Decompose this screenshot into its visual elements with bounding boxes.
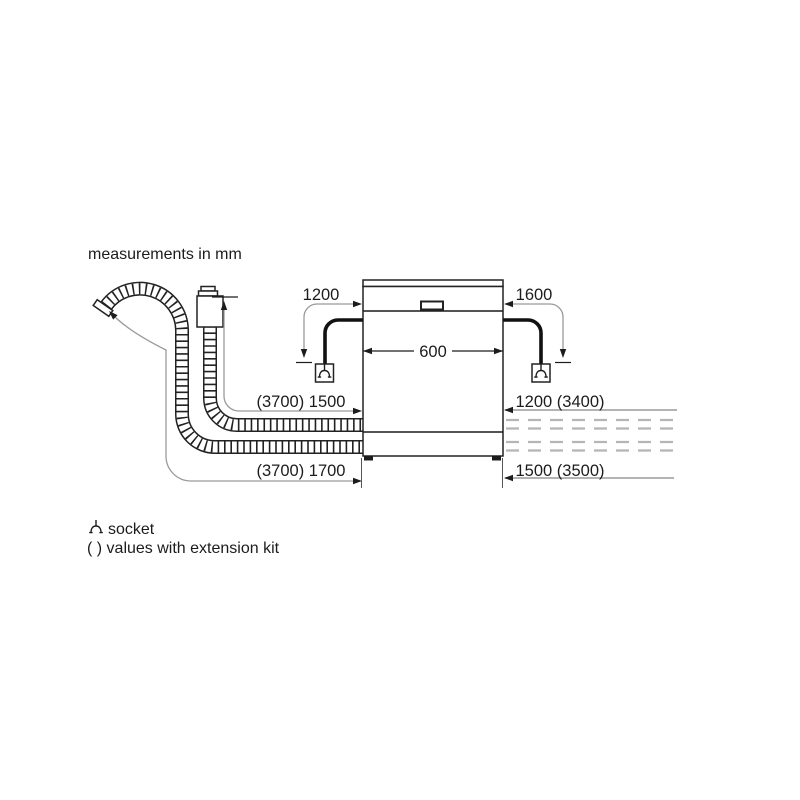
installation-diagram-page: measurements in mm: [0, 0, 800, 800]
dim-supply-hose: (3700) 1500: [212, 297, 362, 414]
legend-extension-note: ( ) values with extension kit: [87, 540, 280, 557]
arrowhead-left: [504, 407, 513, 413]
dishwasher-worktop: [363, 280, 503, 287]
dim-label-left-cable: 1200: [303, 286, 340, 304]
power-cable-left: [325, 320, 363, 364]
arrowhead-left: [504, 301, 513, 307]
arrowhead-down: [560, 349, 566, 358]
dishwasher-foot-left: [364, 456, 373, 461]
dishwasher-foot-right: [492, 456, 501, 461]
right-power-connection: 1600: [503, 286, 571, 382]
dim-label-right-drain: 1500 (3500): [516, 462, 605, 480]
dim-label-drain-hose: (3700) 1700: [257, 462, 346, 480]
dim-label-appliance-width: 600: [419, 343, 447, 361]
dishwasher: [362, 280, 504, 488]
arrowhead-right: [353, 478, 362, 484]
arrowhead-right: [353, 301, 362, 307]
alternative-hose-routing-dashed: [506, 420, 676, 451]
arrowhead-right: [353, 408, 362, 414]
socket-icon: [89, 520, 103, 533]
aquastop-valve: [197, 287, 223, 328]
left-power-connection: 1200: [296, 286, 363, 382]
arrowhead-down: [301, 349, 307, 358]
power-cable-right: [503, 320, 541, 364]
installation-diagram: measurements in mm: [0, 0, 800, 800]
units-note: measurements in mm: [88, 246, 242, 263]
dim-label-right-cable: 1600: [516, 286, 553, 304]
legend-socket-label: socket: [108, 521, 155, 538]
dim-label-supply-hose: (3700) 1500: [257, 393, 346, 411]
door-handle: [421, 302, 443, 310]
dishwasher-body: [363, 287, 503, 457]
legend: socket ( ) values with extension kit: [87, 520, 280, 557]
dim-label-right-supply: 1200 (3400): [516, 393, 605, 411]
arrowhead-left: [504, 475, 513, 481]
